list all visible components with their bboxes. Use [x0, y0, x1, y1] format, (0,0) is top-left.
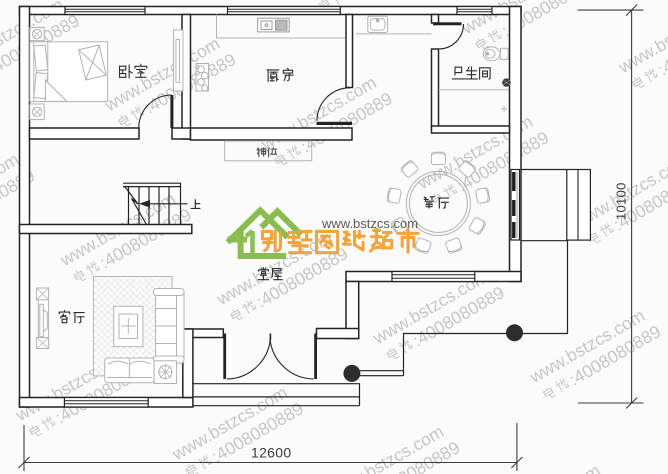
svg-text:10100: 10100: [614, 182, 629, 220]
svg-text:12600: 12600: [251, 445, 291, 461]
svg-text:www.bstzcs.com: www.bstzcs.com: [321, 216, 418, 231]
